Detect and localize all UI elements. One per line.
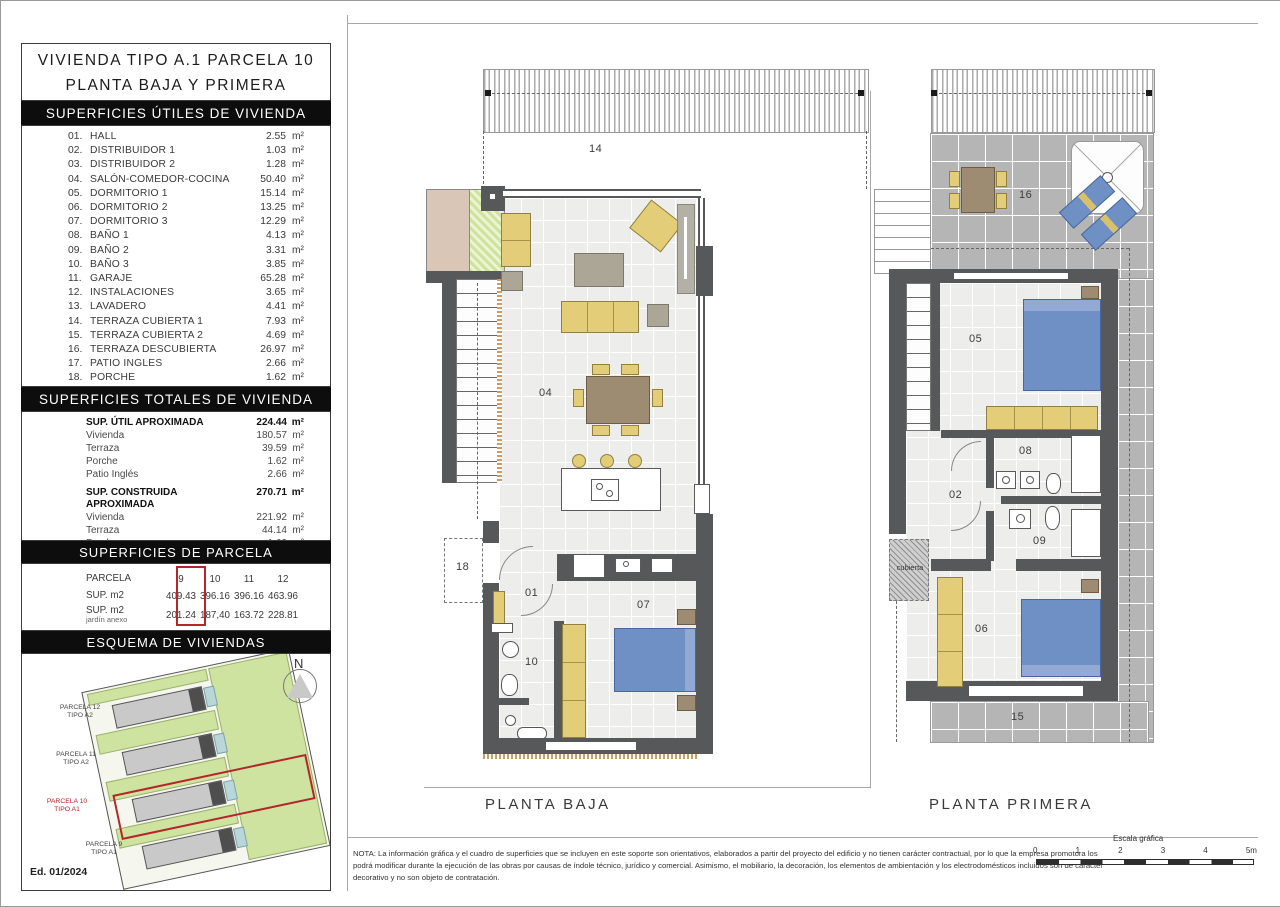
scale-ticks: 0 1 2 3 4 5m <box>1033 846 1257 855</box>
dining-table <box>586 376 650 424</box>
side-table <box>647 304 669 327</box>
pergola-roof <box>931 69 1155 133</box>
toilet <box>501 674 518 696</box>
nightstand <box>677 695 696 711</box>
table-row: 15.TERRAZA CUBIERTA 24.69m² <box>22 329 330 343</box>
pergola-axis-line <box>934 93 1150 94</box>
hall-cabinet <box>493 591 505 625</box>
scale-tick: 0 <box>1033 846 1037 855</box>
table-row: 04.SALÓN-COMEDOR-COCINA50.40m² <box>22 173 330 187</box>
section-header-superficies-parcela: SUPERFICIES DE PARCELA <box>21 541 331 563</box>
parcel-label-9: PARCELA 9TIPO A1 <box>74 841 134 857</box>
pergola-roof <box>483 69 869 133</box>
bed-pillows <box>1024 300 1100 311</box>
section-heading: ESQUEMA DE VIVIENDAS <box>87 635 266 650</box>
superficies-utiles-box: 01.HALL2.55m² 02.DISTRIBUIDOR 11.03m² 03… <box>21 125 331 387</box>
table-row: 10.BAÑO 33.85m² <box>22 258 330 272</box>
table-row: 18.PORCHE1.62m² <box>22 371 330 385</box>
oven <box>651 558 673 573</box>
parcel-label-10: PARCELA 10TIPO A1 <box>37 798 97 814</box>
table-row: 13.LAVADERO4.41m² <box>22 300 330 314</box>
pergola-post <box>485 90 491 96</box>
bed <box>614 628 696 692</box>
row-label: HALL <box>90 130 246 144</box>
side-table <box>501 271 523 291</box>
section-heading: SUPERFICIES TOTALES DE VIVIENDA <box>39 392 313 407</box>
table-row: 11.GARAJE65.28m² <box>22 272 330 286</box>
stool <box>572 454 586 468</box>
bed <box>1023 299 1101 391</box>
nightstand <box>677 609 696 625</box>
frame-top-line <box>347 23 1258 24</box>
room-label-dormitorio-2: 06 <box>975 623 988 635</box>
sofa <box>501 213 531 267</box>
wall <box>1016 559 1101 571</box>
section-header-esquema: ESQUEMA DE VIVIENDAS <box>21 631 331 653</box>
plan-caption-baja: PLANTA BAJA <box>485 796 611 813</box>
stair-edge-strip <box>497 279 502 483</box>
wall <box>931 559 991 571</box>
section-heading: SUPERFICIES ÚTILES DE VIVIENDA <box>46 106 306 121</box>
table-row: 14.TERRAZA CUBIERTA 17.93m² <box>22 315 330 329</box>
toilet <box>1045 506 1060 530</box>
total-sub-row: Terraza39.59m² <box>22 443 330 456</box>
wall <box>499 698 529 705</box>
wardrobe <box>937 577 963 687</box>
room-label-bano-2: 09 <box>1033 535 1046 547</box>
window-band <box>698 198 705 246</box>
wardrobe <box>986 406 1098 430</box>
tv-cabinet-slot <box>684 217 687 279</box>
section-header-superficies-utiles: SUPERFICIES ÚTILES DE VIVIENDA <box>21 101 331 125</box>
wall <box>931 283 940 431</box>
wall <box>442 271 456 483</box>
cooktop-burner <box>596 483 603 490</box>
scale-tick: 2 <box>1118 846 1122 855</box>
table-row: 02.DISTRIBUIDOR 11.03m² <box>22 144 330 158</box>
parcel-label-12: PARCELA 12TIPO A2 <box>50 704 110 720</box>
scale-tick: 4 <box>1203 846 1207 855</box>
room-label-terraza-cubierta-2: 15 <box>1011 711 1024 723</box>
section-heading: SUPERFICIES DE PARCELA <box>79 545 273 560</box>
plan-caption-primera: PLANTA PRIMERA <box>929 796 1093 813</box>
cooktop <box>591 479 619 501</box>
terrace-boundary <box>866 131 867 189</box>
wall <box>483 521 499 543</box>
window-band <box>954 271 1068 281</box>
terrace-table <box>961 167 995 213</box>
sink <box>505 715 516 726</box>
room-label-salon: 04 <box>539 387 552 399</box>
nightstand <box>1081 286 1099 299</box>
wardrobe <box>562 624 586 738</box>
bed-pillows <box>685 629 695 691</box>
total-group-title-row: SUP. CONSTRUIDA APROXIMADA270.71m² <box>22 487 330 513</box>
sheet-title-line1: VIVIENDA TIPO A.1 PARCELA 10 <box>22 48 330 73</box>
table-row: 09.BAÑO 23.31m² <box>22 244 330 258</box>
superficies-totales-box: SUP. ÚTIL APROXIMADA224.44m² Vivienda180… <box>21 411 331 541</box>
terrace-lower <box>931 702 1148 742</box>
exterior-stairs <box>874 189 931 274</box>
chair <box>592 425 610 436</box>
total-group-title-row: SUP. ÚTIL APROXIMADA224.44m² <box>22 417 330 430</box>
roof-boundary <box>896 601 897 742</box>
sliding-door <box>546 740 636 752</box>
total-sub-row: Patio Inglés2.66m² <box>22 469 330 482</box>
title-box: VIVIENDA TIPO A.1 PARCELA 10 PLANTA BAJA… <box>21 43 331 101</box>
shelf <box>491 623 513 633</box>
parcel-label-11: PARCELA 11TIPO A2 <box>46 751 106 767</box>
room-label-cubierta: cubierta <box>890 563 930 572</box>
chair <box>621 425 639 436</box>
scale-tick: 1 <box>1076 846 1080 855</box>
roof-overhang-line <box>931 248 1129 249</box>
sink-basin <box>1016 514 1025 523</box>
shower <box>1071 509 1101 557</box>
terrace-boundary <box>483 131 484 189</box>
frame-divider-vertical <box>347 15 348 891</box>
sink-basin <box>1026 476 1034 484</box>
plot-boundary-line <box>424 787 871 788</box>
stairs <box>906 283 931 431</box>
wall <box>1101 283 1118 701</box>
table-row: 03.DISTRIBUIDOR 21.28m² <box>22 158 330 172</box>
shower <box>1071 435 1101 493</box>
pergola-post <box>1146 90 1152 96</box>
edition-label: Ed. 01/2024 <box>30 866 87 878</box>
roof-overhang-line <box>1129 248 1130 742</box>
sofa <box>561 301 639 333</box>
sink <box>502 641 519 658</box>
window-sill <box>694 484 710 514</box>
column <box>489 193 496 200</box>
wall <box>696 514 713 754</box>
parcela-10-highlight-box <box>176 566 206 626</box>
chair <box>621 364 639 375</box>
wall <box>696 246 713 296</box>
pergola-post <box>858 90 864 96</box>
total-sub-row: Terraza44.14m² <box>22 525 330 538</box>
room-label-porche: 18 <box>456 561 469 573</box>
wall <box>986 511 994 561</box>
sink-basin <box>1002 476 1010 484</box>
pergola-axis-line <box>487 93 863 94</box>
wall <box>889 269 906 534</box>
wall <box>986 438 994 488</box>
insulation-hatch <box>483 754 699 759</box>
faucet <box>623 561 629 567</box>
table-row: 16.TERRAZA DESCUBIERTA26.97m² <box>22 343 330 357</box>
north-arrow-triangle <box>287 674 313 698</box>
table-row: 17.PATIO INGLES2.66m² <box>22 357 330 371</box>
plot-fence-line <box>870 91 871 787</box>
coffee-table <box>574 253 624 287</box>
section-header-superficies-totales: SUPERFICIES TOTALES DE VIVIENDA <box>21 387 331 411</box>
window-band <box>698 296 705 484</box>
chair <box>996 171 1007 187</box>
room-label-bano-1: 08 <box>1019 445 1032 457</box>
cooktop-burner <box>606 490 613 497</box>
scale-bar <box>1036 859 1254 865</box>
stool <box>628 454 642 468</box>
chair <box>592 364 610 375</box>
chair <box>573 389 584 407</box>
planter-beige <box>426 189 471 273</box>
room-label-distribuidor: 02 <box>949 489 962 501</box>
total-sub-row: Porche1.62m² <box>22 456 330 469</box>
total-sub-row: Vivienda221.92m² <box>22 512 330 525</box>
room-label-dormitorio-1: 05 <box>969 333 982 345</box>
chair <box>949 171 960 187</box>
window-band <box>503 189 701 198</box>
wall <box>1001 496 1101 504</box>
fridge <box>573 554 605 578</box>
table-row: 08.BAÑO 14.13m² <box>22 229 330 243</box>
sliding-door <box>969 684 1083 698</box>
room-label-dormitorio-3: 07 <box>637 599 650 611</box>
room-label-terraza-descubierta: 16 <box>1019 189 1032 201</box>
legal-note: NOTA: La información gráfica y el cuadro… <box>353 848 1111 884</box>
table-row: 01.HALL2.55m² <box>22 130 330 144</box>
room-label-bano3: 10 <box>525 656 538 668</box>
sheet-title-line2: PLANTA BAJA Y PRIMERA <box>22 73 330 98</box>
table-row: 12.INSTALACIONES3.65m² <box>22 286 330 300</box>
row-value: 2.55 <box>246 130 286 144</box>
stair-walkline <box>477 283 478 519</box>
nightstand <box>1081 579 1099 593</box>
toilet <box>1046 473 1061 494</box>
room-label-terraza-cubierta-1: 14 <box>589 143 602 155</box>
table-row: 07.DORMITORIO 312.29m² <box>22 215 330 229</box>
scale-tick: 3 <box>1161 846 1165 855</box>
table-row: 06.DORMITORIO 213.25m² <box>22 201 330 215</box>
bed-pillows <box>1022 665 1100 676</box>
pergola-post <box>931 90 937 96</box>
chair <box>949 193 960 209</box>
plan-sheet: VIVIENDA TIPO A.1 PARCELA 10 PLANTA BAJA… <box>0 0 1280 907</box>
stool <box>600 454 614 468</box>
scale-tick: 5m <box>1246 846 1257 855</box>
row-num: 01. <box>68 130 90 144</box>
chair <box>996 193 1007 209</box>
chair <box>652 389 663 407</box>
esquema-box: PARCELA 12TIPO A2 PARCELA 11TIPO A2 PARC… <box>21 653 331 891</box>
total-sub-row: Vivienda180.57m² <box>22 430 330 443</box>
scale-label: Escala gráfica <box>1113 834 1163 843</box>
row-unit: m² <box>286 130 304 144</box>
table-row: 05.DORMITORIO 115.14m² <box>22 187 330 201</box>
terrace-side-strip <box>1118 279 1153 742</box>
